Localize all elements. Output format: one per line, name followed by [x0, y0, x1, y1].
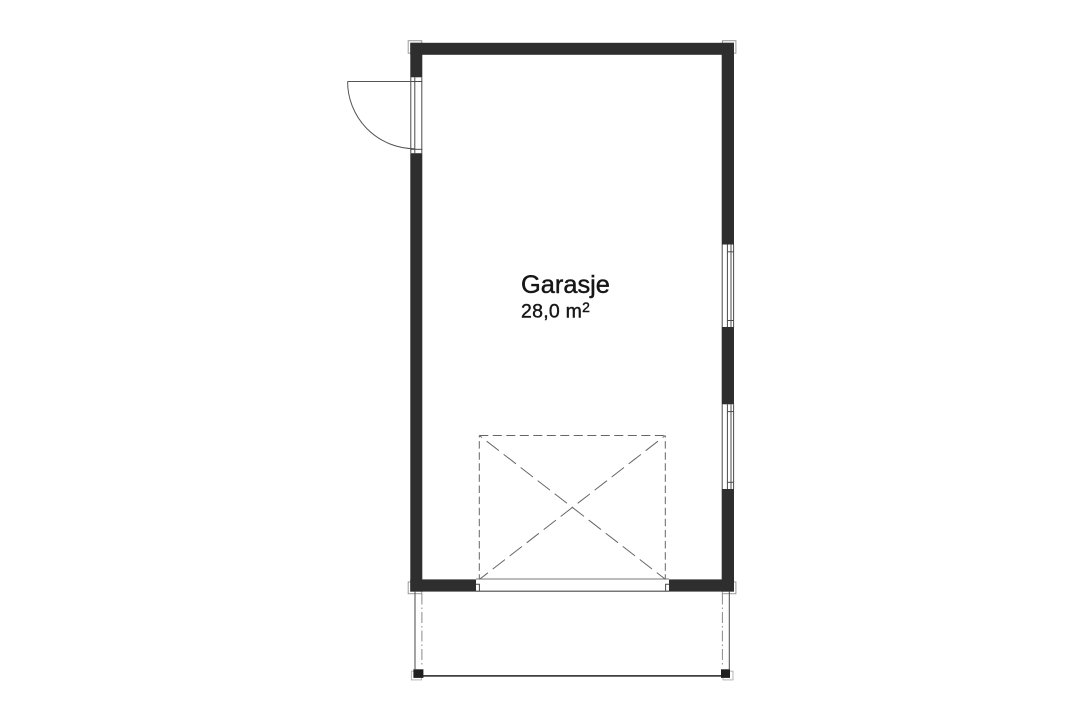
svg-text:Garasje: Garasje: [521, 271, 610, 299]
svg-text:28,0 m2: 28,0 m2: [521, 299, 590, 322]
